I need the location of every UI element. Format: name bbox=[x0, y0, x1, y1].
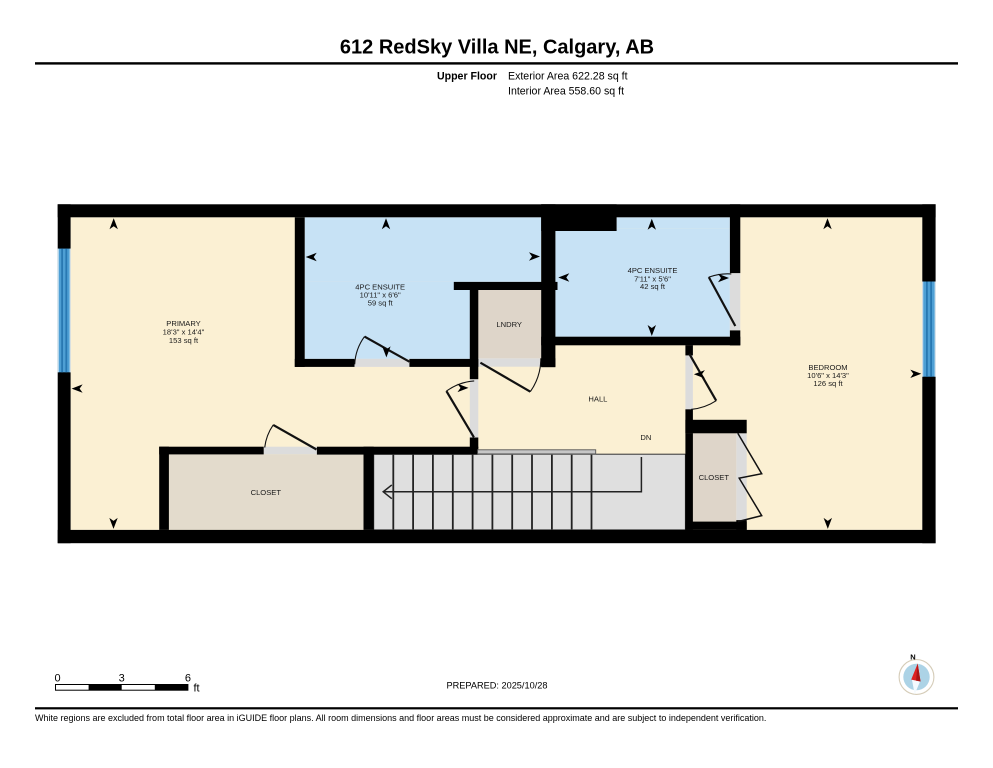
svg-text:HALL: HALL bbox=[588, 395, 607, 404]
svg-text:CLOSET: CLOSET bbox=[699, 473, 730, 482]
svg-text:3: 3 bbox=[119, 673, 125, 685]
svg-text:DN: DN bbox=[640, 433, 651, 442]
svg-text:Interior Area 558.60 sq ft: Interior Area 558.60 sq ft bbox=[508, 86, 624, 98]
svg-text:ft: ft bbox=[194, 683, 200, 695]
svg-text:Exterior Area 622.28 sq ft: Exterior Area 622.28 sq ft bbox=[508, 71, 628, 83]
svg-text:42 sq ft: 42 sq ft bbox=[640, 282, 666, 291]
svg-text:PREPARED: 2025/10/28: PREPARED: 2025/10/28 bbox=[447, 680, 548, 690]
svg-text:612 RedSky Villa NE, Calgary,: 612 RedSky Villa NE, Calgary, AB bbox=[340, 37, 654, 59]
svg-text:126 sq ft: 126 sq ft bbox=[813, 379, 843, 388]
svg-text:59 sq ft: 59 sq ft bbox=[368, 298, 394, 307]
svg-text:LNDRY: LNDRY bbox=[496, 320, 522, 329]
svg-text:153 sq ft: 153 sq ft bbox=[169, 336, 199, 345]
svg-text:Upper Floor: Upper Floor bbox=[437, 71, 497, 83]
svg-text:N: N bbox=[910, 653, 915, 662]
svg-text:6: 6 bbox=[185, 673, 191, 685]
svg-text:0: 0 bbox=[54, 673, 60, 685]
svg-text:CLOSET: CLOSET bbox=[251, 488, 282, 497]
svg-text:White regions are excluded fro: White regions are excluded from total fl… bbox=[35, 713, 766, 723]
